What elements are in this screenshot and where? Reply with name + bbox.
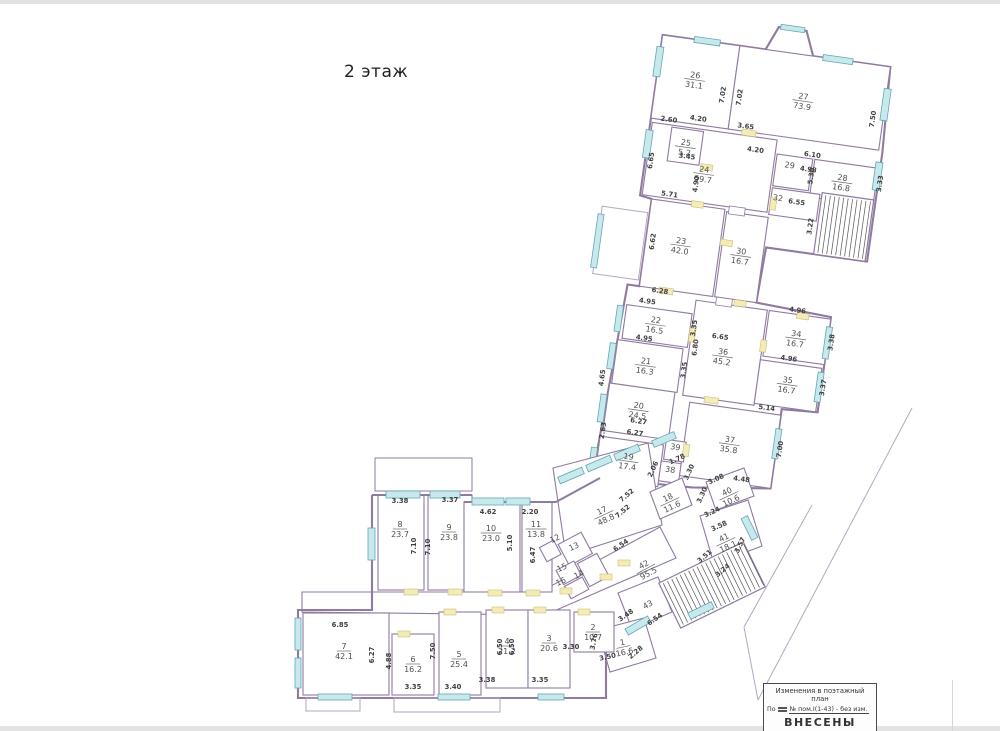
room-number: 2 [590, 623, 595, 632]
titleblock-frame-line [952, 680, 953, 731]
dimension-label: 4.65 [597, 369, 607, 387]
dimension-label: 3.35 [405, 683, 422, 691]
dimension-label: 2.20 [522, 508, 539, 516]
dimension-label: 6.47 [529, 546, 537, 563]
door-opening [560, 588, 572, 594]
room-number: 5 [456, 650, 461, 659]
window [368, 528, 375, 560]
door-opening [492, 607, 504, 613]
dimension-label: 3.37 [818, 379, 828, 397]
window [438, 694, 470, 700]
scanned-floor-plan-page: 2631.12773.9255.22459.7292816.8322342.03… [0, 0, 1000, 731]
room-number: 19 [623, 452, 634, 462]
door-opening [448, 589, 462, 595]
dimension-label: 3.35 [532, 676, 549, 684]
room-area: 23.0 [482, 534, 500, 543]
door-opening [600, 574, 612, 580]
room-number: 26 [690, 70, 701, 80]
room-number: 22 [650, 315, 661, 325]
dimension-label: 3.38 [479, 676, 496, 684]
room-number: 34 [791, 329, 802, 339]
door-opening [734, 300, 747, 308]
door-opening [488, 590, 502, 596]
room-number: 28 [837, 173, 848, 183]
door-opening [578, 609, 590, 615]
site-boundary-line [744, 627, 758, 700]
window [506, 498, 530, 505]
window [318, 694, 352, 700]
dimension-label: 6.50 [496, 638, 504, 655]
door-opening [720, 239, 733, 247]
room-number: 7 [341, 642, 346, 651]
room-number: 3 [546, 634, 551, 643]
room-number: 29 [784, 160, 795, 170]
room-label: 29 [784, 160, 795, 170]
room-area: 20.6 [540, 644, 558, 653]
dimension-label: 3.30 [563, 643, 580, 651]
dimension-label: 6.27 [368, 646, 376, 663]
room-number: 25 [680, 138, 691, 148]
stamp-line1: Изменения в поэтажный [764, 687, 876, 695]
dimension-label: 7.10 [410, 537, 418, 554]
window [295, 658, 301, 688]
shaft-box [728, 206, 745, 216]
room-number: 23 [675, 236, 686, 246]
dimension-label: 7.10 [424, 538, 432, 555]
room-label: 39 [670, 442, 681, 452]
door-opening [618, 560, 630, 566]
door-opening [691, 201, 704, 209]
room-number: 32 [772, 193, 783, 203]
dimension-label: 4.62 [480, 508, 497, 516]
room-number: 30 [736, 246, 747, 256]
room-area: 23.7 [391, 530, 409, 539]
dimension-label: 3.38 [392, 497, 409, 505]
door-opening [404, 589, 418, 595]
balcony-outline [375, 458, 472, 491]
door-opening [526, 590, 540, 596]
dimension-label: 3.33 [875, 175, 885, 193]
window [538, 694, 564, 700]
dimension-label: 5.10 [506, 534, 514, 551]
stamp-line2: план [764, 695, 876, 703]
room-label: 32 [772, 193, 783, 203]
window [591, 214, 604, 268]
room-number: 24 [699, 164, 710, 174]
stamp-line3-value: № пом.I(1-43) - без изм. [789, 706, 869, 714]
changes-stamp-block: Изменения в поэтажный план По № пом.I(1-… [763, 683, 877, 731]
door-opening [534, 607, 546, 613]
stamp-vneseny-label: ВНЕСЕНЫ [764, 716, 876, 730]
dimension-label: 3.38 [826, 333, 836, 351]
shaft-box [716, 297, 733, 307]
door-opening [444, 609, 456, 615]
door-opening [760, 340, 768, 353]
dimension-label: 7.00 [775, 440, 785, 458]
dimension-label: 7.50 [429, 642, 437, 659]
window [295, 618, 301, 650]
stamp-line3-prefix: По [767, 706, 776, 713]
room-number: 36 [717, 347, 728, 357]
room-number: 8 [397, 520, 402, 529]
room-area: 25.4 [450, 660, 468, 669]
room-number: 27 [798, 91, 809, 101]
mini-stamp-icon [778, 706, 787, 713]
floor-plan-drawing: 2631.12773.9255.22459.7292816.8322342.03… [0, 0, 1000, 731]
stamp-line3: По № пом.I(1-43) - без изм. [767, 706, 876, 714]
dimension-label: 6.85 [332, 621, 349, 629]
room-number: 20 [633, 401, 644, 411]
dimension-label: 4.88 [385, 652, 393, 669]
room-area: 23.8 [440, 533, 458, 542]
room-number: 39 [670, 442, 681, 452]
room-area: 13.8 [527, 530, 545, 539]
room-area: 42.1 [335, 652, 353, 661]
dimension-label: 3.40 [445, 683, 462, 691]
room-number: 11 [531, 520, 541, 529]
room-number: 9 [446, 523, 451, 532]
room-number: 37 [724, 435, 735, 445]
window [472, 498, 504, 505]
floor-title: 2 этаж [344, 62, 408, 82]
room-number: 6 [410, 655, 415, 664]
dimension-label: 6.50 [508, 638, 516, 655]
door-opening [398, 631, 410, 637]
room-number: 35 [782, 375, 793, 385]
dimension-label: 3.37 [442, 496, 459, 504]
room-number: 10 [486, 524, 496, 533]
room-number: 21 [640, 356, 651, 366]
room-area: 16.2 [404, 665, 422, 674]
